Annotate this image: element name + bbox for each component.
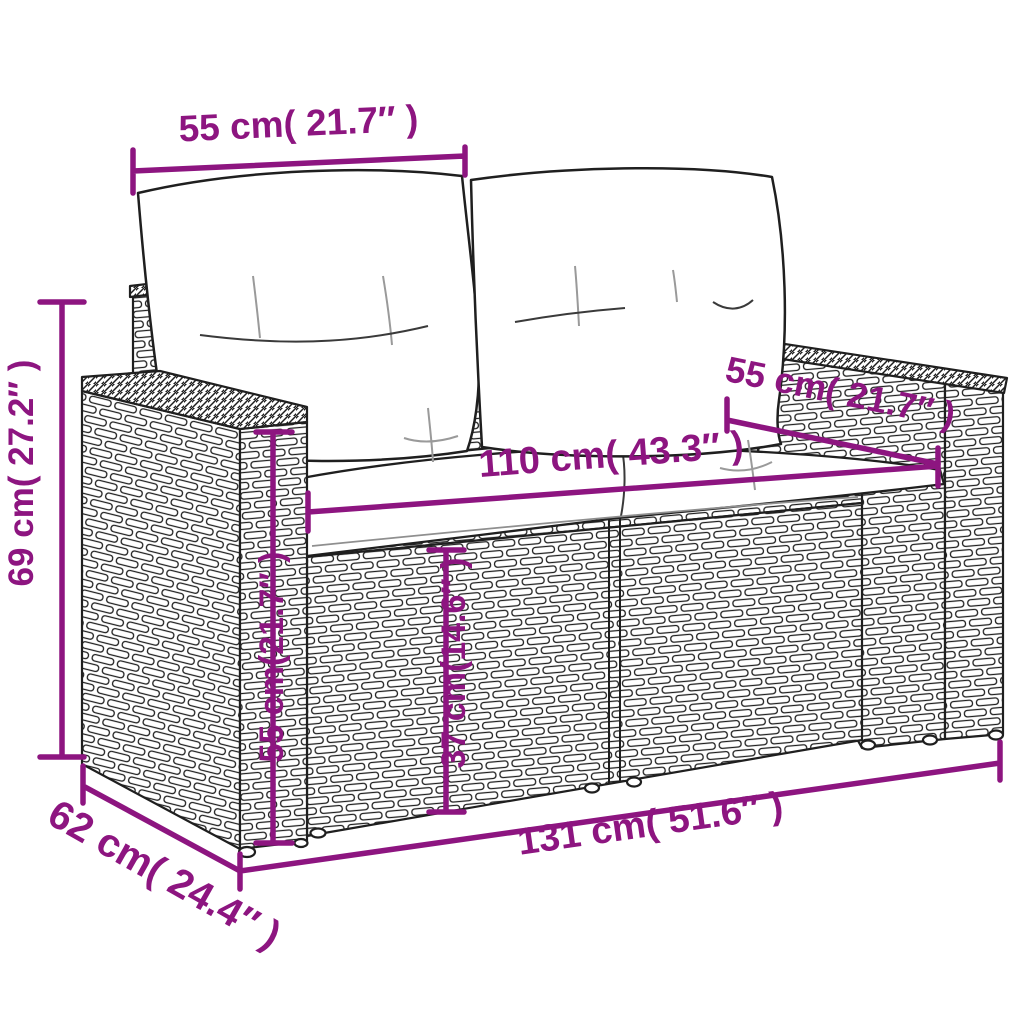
sofa-foot — [311, 829, 326, 838]
product-dimension-diagram: 55 cm( 21.7″ ) 69 cm( 27.2″ ) 55 cm( 21.… — [0, 0, 1024, 1024]
dim-overall-width-label: 131 cm( 51.6″ ) — [515, 784, 786, 863]
sofa-line-art — [82, 168, 1007, 857]
sofa-foot — [295, 839, 308, 847]
dim-armrest-height-label: 55 cm(21.7″ ) — [253, 552, 291, 763]
sofa-foot — [585, 784, 599, 793]
sofa-foot — [627, 778, 641, 787]
right-armrest-front-face — [945, 383, 1003, 739]
sofa-foot — [923, 736, 937, 745]
sofa-foot — [989, 731, 1003, 740]
dim-seat-height-label: 37 cm(14.6″ ) — [435, 558, 473, 769]
left-armrest-outer-face — [82, 391, 240, 849]
sofa-foot — [861, 741, 875, 750]
dim-overall-height-label: 69 cm( 27.2″ ) — [2, 360, 41, 587]
dim-overall-height-line — [40, 302, 84, 757]
dim-backrest-width-label: 55 cm( 21.7″ ) — [178, 98, 419, 150]
sofa-dimension-drawing: 55 cm( 21.7″ ) 69 cm( 27.2″ ) 55 cm( 21.… — [0, 0, 1024, 1024]
